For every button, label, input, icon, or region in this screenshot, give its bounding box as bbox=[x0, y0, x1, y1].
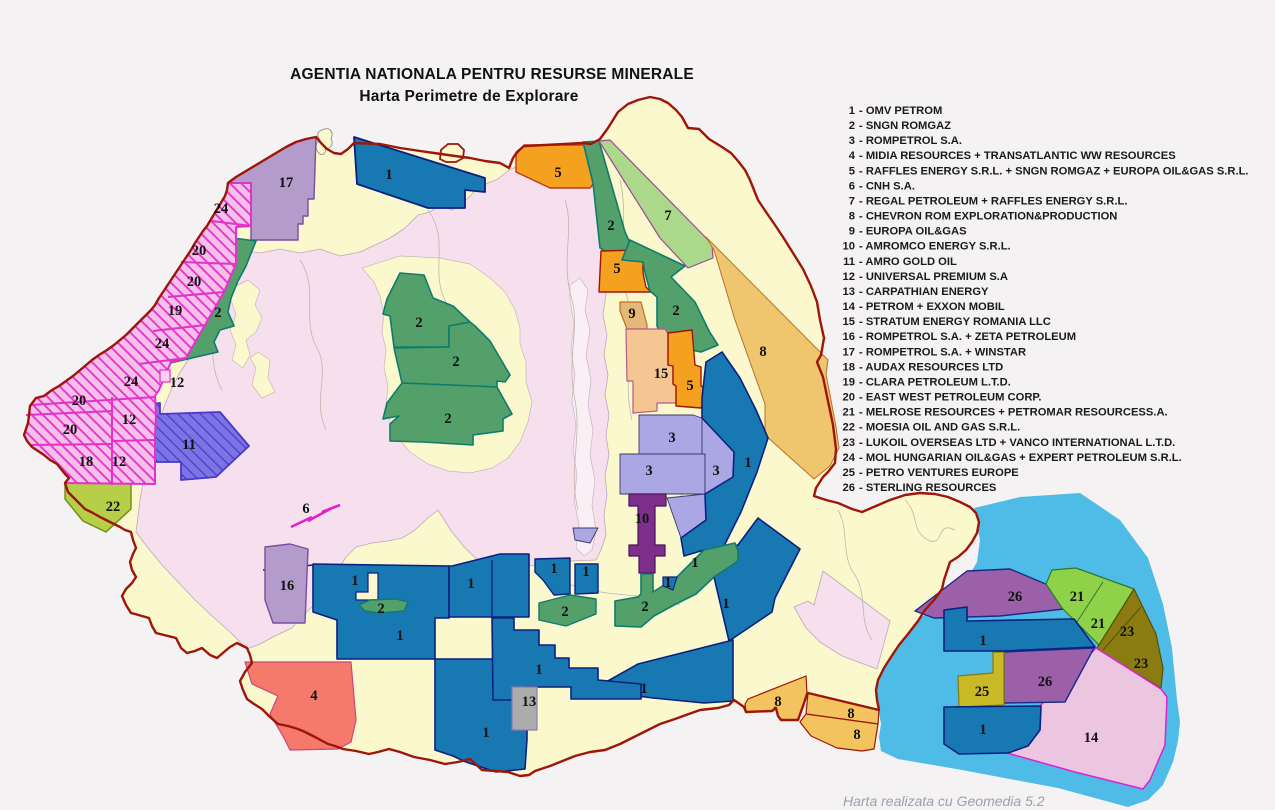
svg-text:- AMROMCO ENERGY S.R.L.: - AMROMCO ENERGY S.R.L. bbox=[859, 241, 1011, 253]
svg-text:20: 20 bbox=[63, 422, 78, 438]
svg-text:13: 13 bbox=[522, 694, 537, 710]
svg-text:AGENTIA NATIONALA PENTRU RESUR: AGENTIA NATIONALA PENTRU RESURSE MINERAL… bbox=[290, 66, 694, 83]
svg-text:2: 2 bbox=[214, 305, 221, 321]
svg-text:- CARPATHIAN ENERGY: - CARPATHIAN ENERGY bbox=[859, 286, 989, 298]
svg-text:3: 3 bbox=[668, 430, 675, 446]
svg-text:- PETRO VENTURES EUROPE: - PETRO VENTURES EUROPE bbox=[859, 467, 1019, 479]
svg-text:1: 1 bbox=[396, 628, 403, 644]
svg-text:10: 10 bbox=[843, 241, 855, 253]
svg-text:- ROMPETROL S.A. + WINSTAR: - ROMPETROL S.A. + WINSTAR bbox=[859, 346, 1026, 358]
svg-text:- MOL HUNGARIAN OIL&GAS + EXPE: - MOL HUNGARIAN OIL&GAS + EXPERT PETROLE… bbox=[859, 452, 1182, 464]
svg-text:18: 18 bbox=[843, 361, 855, 373]
svg-text:- LUKOIL OVERSEAS LTD + VANCO: - LUKOIL OVERSEAS LTD + VANCO INTERNATIO… bbox=[859, 437, 1175, 449]
svg-text:- AUDAX RESOURCES LTD: - AUDAX RESOURCES LTD bbox=[859, 361, 1003, 373]
svg-text:1: 1 bbox=[691, 555, 698, 571]
svg-text:1: 1 bbox=[744, 455, 751, 471]
svg-text:24: 24 bbox=[843, 452, 856, 464]
svg-text:9: 9 bbox=[628, 306, 635, 322]
svg-text:20: 20 bbox=[192, 243, 207, 259]
svg-text:- MOESIA OIL AND GAS S.R.L.: - MOESIA OIL AND GAS S.R.L. bbox=[859, 422, 1020, 434]
svg-text:8: 8 bbox=[774, 694, 781, 710]
svg-text:24: 24 bbox=[124, 374, 139, 390]
svg-text:23: 23 bbox=[1134, 656, 1149, 672]
svg-text:2: 2 bbox=[849, 120, 855, 132]
svg-text:1: 1 bbox=[550, 561, 557, 577]
svg-text:3: 3 bbox=[712, 463, 719, 479]
svg-text:6: 6 bbox=[849, 180, 855, 192]
svg-text:- RAFFLES ENERGY S.R.L. + SNGN: - RAFFLES ENERGY S.R.L. + SNGN ROMGAZ + … bbox=[859, 165, 1249, 177]
svg-text:25: 25 bbox=[843, 467, 855, 479]
svg-text:- MELROSE RESOURCES + PETROMAR: - MELROSE RESOURCES + PETROMAR RESOURCES… bbox=[859, 407, 1168, 419]
svg-text:- STRATUM ENERGY ROMANIA LLC: - STRATUM ENERGY ROMANIA LLC bbox=[859, 316, 1051, 328]
svg-text:9: 9 bbox=[849, 226, 855, 238]
svg-text:2: 2 bbox=[561, 604, 568, 620]
svg-text:- CNH S.A.: - CNH S.A. bbox=[859, 180, 915, 192]
svg-text:10: 10 bbox=[635, 511, 650, 527]
svg-text:1: 1 bbox=[664, 575, 671, 591]
svg-text:24: 24 bbox=[155, 336, 170, 352]
svg-text:- REGAL PETROLEUM + RAFFLES EN: - REGAL PETROLEUM + RAFFLES ENERGY S.R.L… bbox=[859, 196, 1127, 208]
svg-text:1: 1 bbox=[582, 564, 589, 580]
svg-text:5: 5 bbox=[554, 165, 561, 181]
svg-text:1: 1 bbox=[979, 633, 986, 649]
svg-text:11: 11 bbox=[843, 256, 855, 268]
svg-text:- OMV PETROM: - OMV PETROM bbox=[859, 105, 942, 117]
svg-text:2: 2 bbox=[415, 315, 422, 331]
svg-text:8: 8 bbox=[853, 727, 860, 743]
svg-text:- PETROM + EXXON MOBIL: - PETROM + EXXON MOBIL bbox=[859, 301, 1005, 313]
svg-text:4: 4 bbox=[310, 688, 317, 704]
svg-text:7: 7 bbox=[849, 196, 855, 208]
svg-text:19: 19 bbox=[168, 303, 183, 319]
svg-text:16: 16 bbox=[843, 331, 855, 343]
svg-text:21: 21 bbox=[843, 407, 855, 419]
svg-text:12: 12 bbox=[122, 412, 137, 428]
svg-text:3: 3 bbox=[645, 463, 652, 479]
svg-text:- EUROPA OIL&GAS: - EUROPA OIL&GAS bbox=[859, 226, 967, 238]
svg-text:4: 4 bbox=[849, 150, 856, 162]
svg-text:17: 17 bbox=[843, 346, 855, 358]
svg-text:6: 6 bbox=[302, 501, 309, 517]
svg-text:1: 1 bbox=[467, 576, 474, 592]
svg-text:8: 8 bbox=[849, 211, 855, 223]
svg-text:8: 8 bbox=[759, 344, 766, 360]
svg-text:- UNIVERSAL PREMIUM S.A: - UNIVERSAL PREMIUM S.A bbox=[859, 271, 1008, 283]
svg-text:12: 12 bbox=[170, 375, 185, 391]
svg-text:1: 1 bbox=[385, 167, 392, 183]
svg-text:25: 25 bbox=[975, 684, 990, 700]
svg-text:- AMRO GOLD OIL: - AMRO GOLD OIL bbox=[859, 256, 957, 268]
svg-text:26: 26 bbox=[1038, 674, 1053, 690]
svg-text:- SNGN ROMGAZ: - SNGN ROMGAZ bbox=[859, 120, 951, 132]
svg-text:21: 21 bbox=[1070, 589, 1085, 605]
svg-text:2: 2 bbox=[377, 601, 384, 617]
svg-text:1: 1 bbox=[351, 573, 358, 589]
svg-text:14: 14 bbox=[1084, 730, 1099, 746]
svg-text:17: 17 bbox=[279, 175, 294, 191]
svg-text:20: 20 bbox=[843, 392, 855, 404]
svg-text:2: 2 bbox=[672, 303, 679, 319]
svg-text:1: 1 bbox=[849, 105, 855, 117]
svg-text:- MIDIA RESOURCES + TRANSATLAN: - MIDIA RESOURCES + TRANSATLANTIC WW RES… bbox=[859, 150, 1176, 162]
svg-text:20: 20 bbox=[187, 274, 202, 290]
svg-text:- ROMPETROL S.A.: - ROMPETROL S.A. bbox=[859, 135, 962, 147]
svg-text:19: 19 bbox=[843, 376, 855, 388]
svg-text:22: 22 bbox=[843, 422, 855, 434]
svg-text:15: 15 bbox=[654, 366, 669, 382]
svg-text:- EAST WEST PETROLEUM CORP.: - EAST WEST PETROLEUM CORP. bbox=[859, 392, 1042, 404]
svg-text:- STERLING RESOURCES: - STERLING RESOURCES bbox=[859, 482, 997, 494]
svg-text:1: 1 bbox=[482, 725, 489, 741]
svg-text:Harta Perimetre de Explorare: Harta Perimetre de Explorare bbox=[359, 88, 578, 105]
svg-text:2: 2 bbox=[641, 599, 648, 615]
svg-text:26: 26 bbox=[843, 482, 855, 494]
svg-text:- CLARA PETROLEUM L.T.D.: - CLARA PETROLEUM L.T.D. bbox=[859, 376, 1011, 388]
svg-text:11: 11 bbox=[182, 437, 196, 453]
svg-text:2: 2 bbox=[444, 411, 451, 427]
svg-text:8: 8 bbox=[847, 706, 854, 722]
svg-text:1: 1 bbox=[535, 662, 542, 678]
svg-text:23: 23 bbox=[1120, 624, 1135, 640]
svg-text:24: 24 bbox=[214, 201, 229, 217]
svg-text:12: 12 bbox=[112, 454, 127, 470]
svg-text:- ROMPETROL S.A. + ZETA PETROL: - ROMPETROL S.A. + ZETA PETROLEUM bbox=[859, 331, 1076, 343]
svg-text:22: 22 bbox=[106, 499, 121, 515]
svg-text:Harta realizata cu Geomedia 5.: Harta realizata cu Geomedia 5.2 bbox=[843, 793, 1045, 809]
svg-text:1: 1 bbox=[979, 722, 986, 738]
svg-text:14: 14 bbox=[843, 301, 856, 313]
svg-text:5: 5 bbox=[849, 165, 855, 177]
svg-text:- CHEVRON ROM EXPLORATION&PROD: - CHEVRON ROM EXPLORATION&PRODUCTION bbox=[859, 211, 1117, 223]
svg-text:26: 26 bbox=[1008, 589, 1023, 605]
svg-text:15: 15 bbox=[843, 316, 855, 328]
svg-text:1: 1 bbox=[640, 681, 647, 697]
svg-text:21: 21 bbox=[1091, 616, 1106, 632]
svg-text:16: 16 bbox=[280, 578, 295, 594]
svg-text:2: 2 bbox=[607, 218, 614, 234]
svg-text:5: 5 bbox=[613, 261, 620, 277]
svg-text:2: 2 bbox=[452, 354, 459, 370]
svg-text:20: 20 bbox=[72, 393, 87, 409]
svg-text:3: 3 bbox=[849, 135, 855, 147]
svg-text:1: 1 bbox=[722, 596, 729, 612]
svg-text:23: 23 bbox=[843, 437, 855, 449]
svg-text:18: 18 bbox=[79, 454, 94, 470]
svg-text:12: 12 bbox=[843, 271, 855, 283]
svg-text:5: 5 bbox=[686, 378, 693, 394]
svg-text:7: 7 bbox=[664, 208, 671, 224]
svg-text:13: 13 bbox=[843, 286, 855, 298]
